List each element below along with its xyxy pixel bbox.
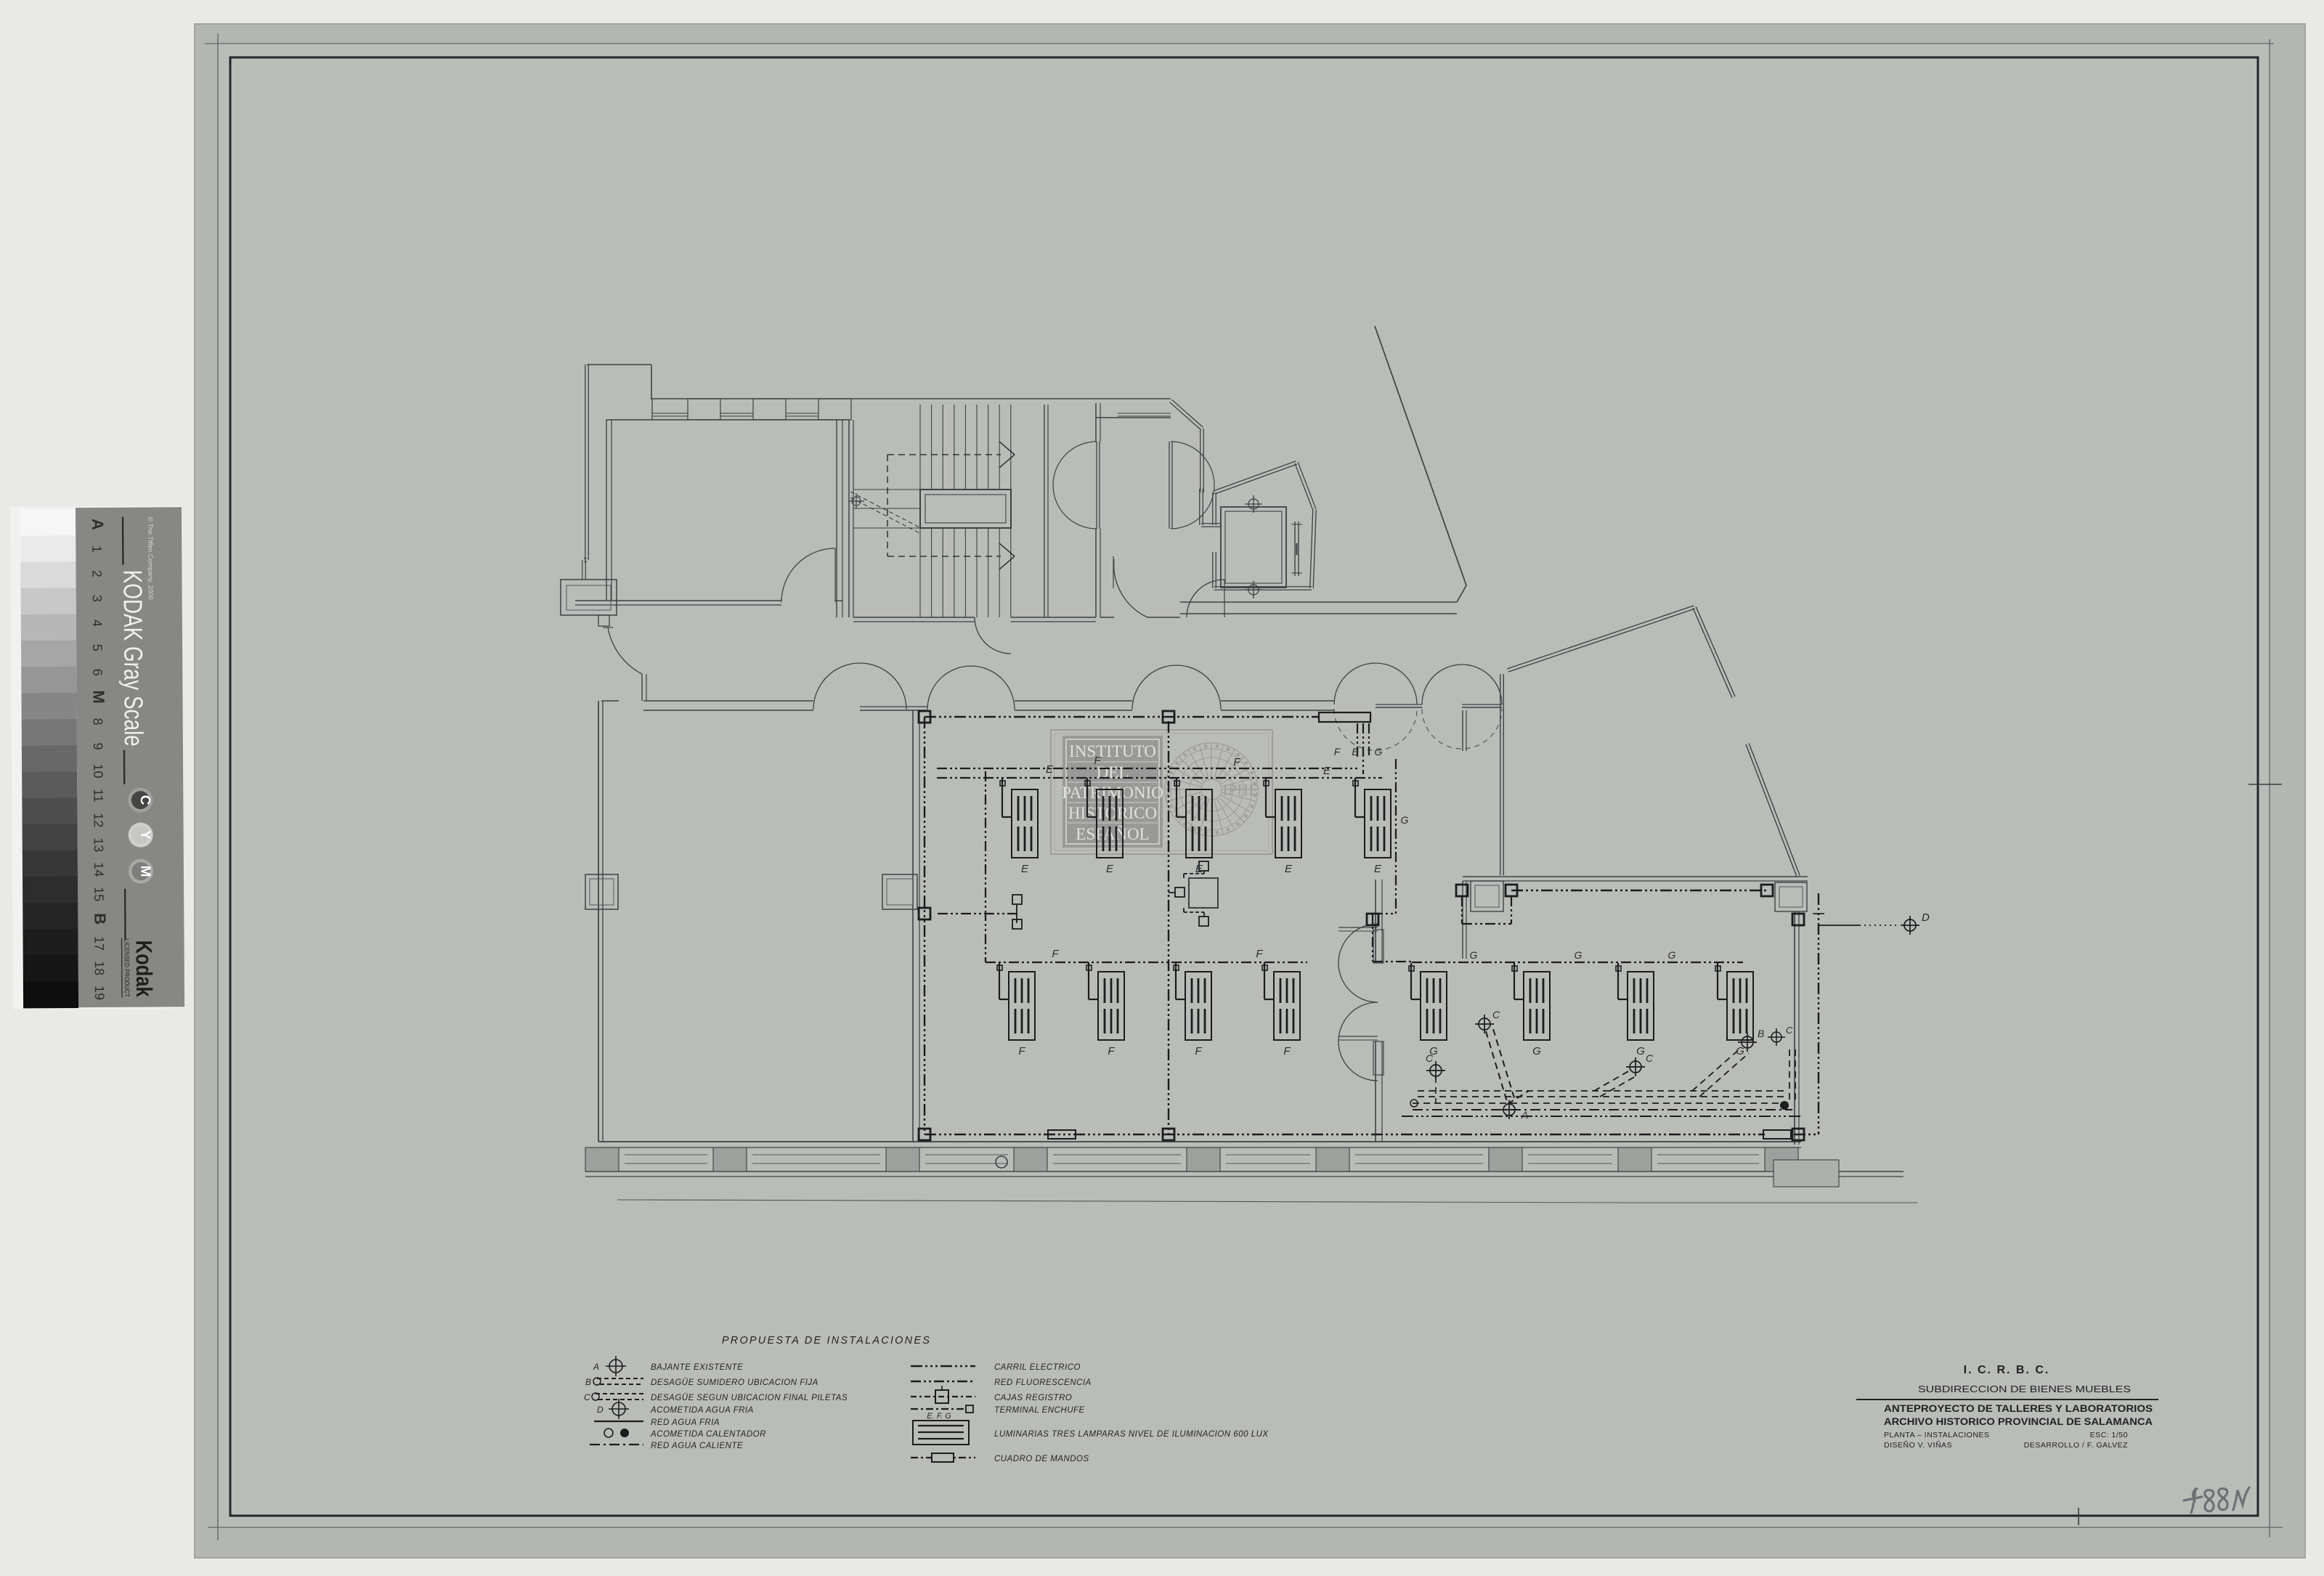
- svg-text:B: B: [1758, 1028, 1764, 1039]
- svg-text:F: F: [1256, 948, 1263, 960]
- svg-text:11: 11: [91, 789, 105, 803]
- svg-text:E: E: [1323, 765, 1331, 777]
- svg-text:HISTORICO: HISTORICO: [1068, 804, 1157, 822]
- svg-text:F: F: [1334, 746, 1341, 757]
- svg-text:DISEÑO V. VIÑAS: DISEÑO V. VIÑAS: [1884, 1440, 1952, 1450]
- svg-text:F: F: [1018, 1045, 1025, 1057]
- svg-text:PLANTA – INSTALACIONES: PLANTA – INSTALACIONES: [1884, 1431, 1989, 1439]
- svg-text:DEL: DEL: [1097, 763, 1129, 781]
- svg-text:ARCHIVO HISTORICO PROVINCIAL: ARCHIVO HISTORICO PROVINCIAL DE SALAMANC…: [1884, 1416, 2153, 1427]
- svg-text:TERMINAL ENCHUFE: TERMINAL ENCHUFE: [994, 1406, 1085, 1415]
- svg-text:M: M: [137, 866, 153, 877]
- svg-text:F: F: [1108, 1045, 1115, 1057]
- svg-text:KODAK Gray Scale: KODAK Gray Scale: [118, 570, 148, 747]
- svg-text:E: E: [1106, 863, 1114, 875]
- svg-text:SUBDIRECCION DE BIENES MUEB: SUBDIRECCION DE BIENES MUEBLES: [1918, 1384, 2131, 1394]
- svg-text:C: C: [1492, 1009, 1500, 1020]
- svg-text:8: 8: [91, 718, 105, 726]
- svg-text:D: D: [597, 1405, 604, 1415]
- svg-text:15: 15: [92, 887, 106, 901]
- svg-text:CARRIL ELECTRICO: CARRIL ELECTRICO: [994, 1363, 1081, 1372]
- svg-text:C: C: [584, 1392, 590, 1402]
- svg-text:10: 10: [91, 763, 105, 778]
- svg-text:A: A: [89, 519, 107, 530]
- svg-text:F: F: [1195, 1045, 1202, 1057]
- svg-text:PROPUESTA DE INSTALACIONES: PROPUESTA DE INSTALACIONES: [722, 1335, 931, 1346]
- svg-text:E: E: [1285, 863, 1293, 875]
- svg-text:LUMINARIAS TRES LAMPARAS NI: LUMINARIAS TRES LAMPARAS NIVEL DE ILUMIN…: [994, 1430, 1269, 1439]
- svg-text:DESAGÜE SEGUN UBICACION FIN: DESAGÜE SEGUN UBICACION FINAL PILETAS: [651, 1394, 848, 1402]
- svg-text:9: 9: [91, 742, 105, 750]
- svg-text:G: G: [1532, 1045, 1541, 1057]
- svg-text:CUADRO DE MANDOS: CUADRO DE MANDOS: [994, 1455, 1089, 1463]
- svg-text:4: 4: [90, 620, 105, 627]
- svg-text:© The Tiffen Company, 2000: © The Tiffen Company, 2000: [147, 517, 155, 600]
- svg-text:G: G: [1668, 949, 1676, 961]
- svg-text:E: E: [1195, 863, 1203, 875]
- svg-text:A: A: [593, 1362, 599, 1372]
- svg-text:G: G: [1470, 949, 1478, 961]
- svg-text:IPHE: IPHE: [1223, 781, 1259, 799]
- svg-text:B: B: [91, 913, 109, 925]
- svg-text:2: 2: [89, 570, 104, 577]
- svg-text:DESARROLLO / F. GALVEZ: DESARROLLO / F. GALVEZ: [2024, 1441, 2128, 1450]
- svg-text:ANTEPROYECTO DE TALLERES Y: ANTEPROYECTO DE TALLERES Y LABORATORIOS: [1884, 1403, 2153, 1414]
- svg-text:E: E: [1021, 863, 1029, 875]
- svg-text:G: G: [1636, 1045, 1645, 1057]
- svg-text:13: 13: [92, 837, 106, 852]
- svg-text:F: F: [1052, 948, 1059, 960]
- svg-text:5: 5: [90, 644, 105, 651]
- svg-text:A: A: [1521, 1109, 1528, 1121]
- svg-text:CAJAS REGISTRO: CAJAS REGISTRO: [994, 1394, 1072, 1402]
- svg-text:3: 3: [90, 595, 105, 602]
- svg-text:12: 12: [91, 813, 105, 827]
- svg-text:G: G: [1429, 1045, 1438, 1057]
- svg-text:RED AGUA FRIA: RED AGUA FRIA: [651, 1418, 720, 1427]
- svg-text:E: E: [1352, 746, 1359, 757]
- svg-text:G: G: [1736, 1045, 1744, 1057]
- svg-text:19: 19: [92, 986, 107, 1000]
- svg-text:Y: Y: [137, 830, 153, 840]
- svg-text:DESAGÜE SUMIDERO UBICACION: DESAGÜE SUMIDERO UBICACION FIJA: [651, 1378, 818, 1387]
- svg-text:ACOMETIDA CALENTADOR: ACOMETIDA CALENTADOR: [650, 1430, 766, 1439]
- svg-text:INSTITUTO: INSTITUTO: [1069, 742, 1156, 760]
- svg-text:G: G: [1375, 746, 1383, 757]
- svg-text:F: F: [1283, 1045, 1291, 1057]
- svg-text:6: 6: [90, 669, 105, 676]
- svg-text:BAJANTE EXISTENTE: BAJANTE EXISTENTE: [651, 1363, 743, 1372]
- svg-text:F: F: [1094, 755, 1101, 767]
- svg-text:ESC: 1/50: ESC: 1/50: [2090, 1431, 2128, 1439]
- svg-text:M: M: [89, 690, 107, 703]
- svg-text:RED FLUORESCENCIA: RED FLUORESCENCIA: [994, 1378, 1092, 1387]
- svg-text:E: E: [1046, 763, 1054, 776]
- svg-text:14: 14: [92, 862, 106, 877]
- svg-text:D: D: [1922, 911, 1930, 924]
- svg-text:F: F: [1233, 756, 1240, 768]
- svg-text:LICENSED PRODUCT: LICENSED PRODUCT: [123, 939, 131, 997]
- svg-text:I. C. R. B. C.: I. C. R. B. C.: [1964, 1364, 2050, 1376]
- svg-text:RED AGUA CALIENTE: RED AGUA CALIENTE: [651, 1442, 743, 1450]
- svg-text:Kodak: Kodak: [131, 941, 157, 998]
- svg-text:B: B: [585, 1377, 591, 1387]
- svg-text:C: C: [1786, 1025, 1793, 1036]
- svg-text:PATRIMONIO: PATRIMONIO: [1062, 784, 1163, 802]
- svg-text:C: C: [137, 795, 153, 805]
- svg-text:17: 17: [92, 936, 107, 951]
- svg-text:1: 1: [89, 545, 104, 553]
- svg-text:G: G: [1401, 814, 1409, 826]
- svg-text:ACOMETIDA AGUA FRIA: ACOMETIDA AGUA FRIA: [650, 1406, 754, 1415]
- svg-text:C: C: [1646, 1052, 1654, 1064]
- svg-text:18: 18: [92, 961, 107, 975]
- svg-text:E. F. G: E. F. G: [927, 1412, 951, 1421]
- svg-text:E: E: [1374, 863, 1382, 875]
- svg-text:G: G: [1575, 949, 1582, 961]
- svg-text:ESPAÑOL: ESPAÑOL: [1076, 825, 1149, 843]
